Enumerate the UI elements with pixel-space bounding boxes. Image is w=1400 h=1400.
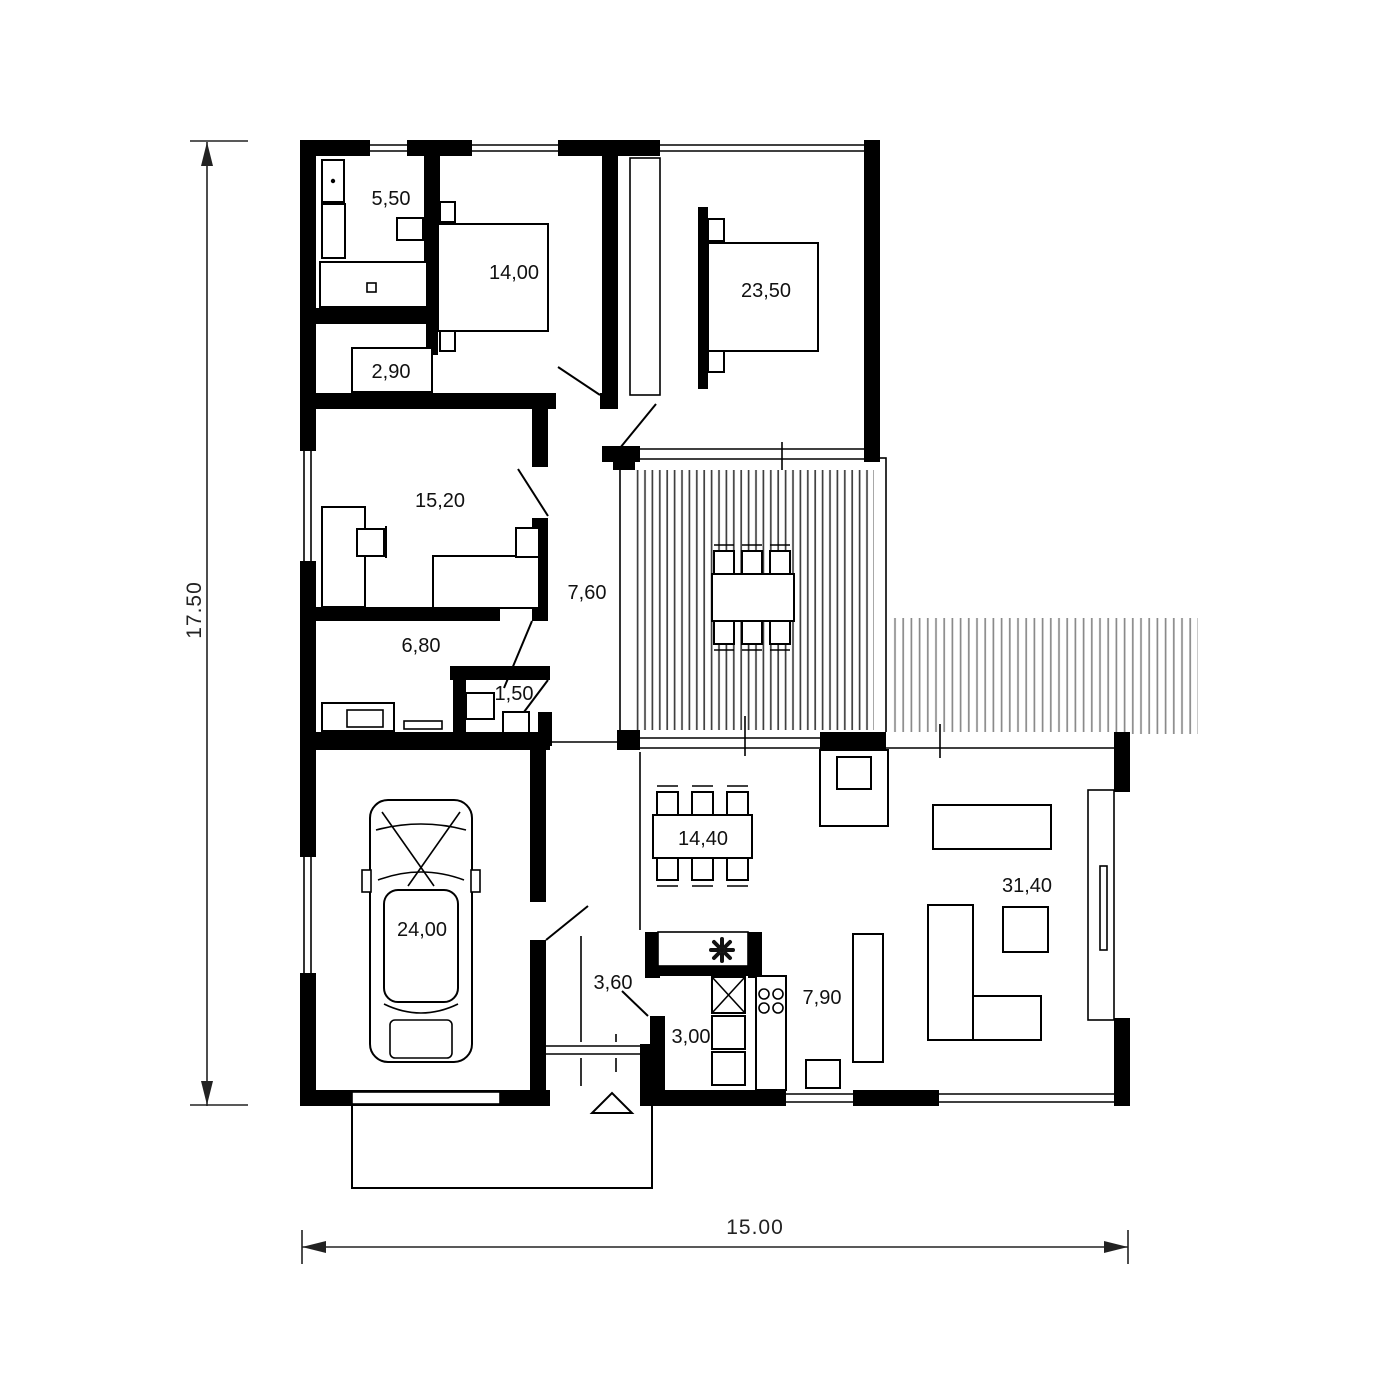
chair bbox=[657, 792, 678, 815]
label-wc: 1,50 bbox=[495, 683, 534, 705]
bed bbox=[433, 556, 539, 608]
bed-headboard bbox=[426, 198, 438, 355]
sink-icon bbox=[711, 939, 733, 961]
chair bbox=[714, 621, 734, 644]
sliding-door-master-terrace bbox=[640, 446, 864, 462]
terrace-table bbox=[712, 574, 794, 621]
chair bbox=[727, 792, 748, 815]
bedside-shelf bbox=[397, 218, 423, 240]
bed-headboard bbox=[698, 207, 708, 389]
burner bbox=[759, 989, 769, 999]
window-top-bedroom bbox=[472, 140, 558, 156]
label-garage: 24,00 bbox=[397, 919, 447, 941]
appliance-column bbox=[712, 977, 745, 1085]
chair bbox=[770, 621, 790, 644]
window-bottom-kitchen bbox=[786, 1090, 853, 1106]
window-left-garage bbox=[300, 857, 316, 973]
terrace-extension-hatch bbox=[888, 618, 1198, 734]
dim-depth: 17.50 bbox=[183, 581, 206, 639]
nightstand bbox=[708, 350, 724, 372]
chair bbox=[714, 551, 734, 574]
burner bbox=[759, 1003, 769, 1013]
doormat bbox=[404, 721, 442, 729]
kitchen-cabinet bbox=[806, 1060, 840, 1088]
chair bbox=[742, 551, 762, 574]
sliding-door-living-terrace bbox=[640, 732, 820, 750]
window-top-bath bbox=[370, 140, 407, 156]
window-top-master bbox=[660, 140, 864, 156]
chair bbox=[692, 792, 713, 815]
appliance bbox=[712, 1052, 745, 1085]
pillow bbox=[516, 528, 539, 557]
dim-width: 15.00 bbox=[726, 1216, 784, 1239]
label-hall: 6,80 bbox=[402, 635, 441, 657]
floor-plan-drawing: 5,50 14,00 23,50 2,90 15,20 7,60 6,80 1,… bbox=[0, 0, 1400, 1400]
label-kitchen: 7,90 bbox=[803, 987, 842, 1009]
chair bbox=[357, 529, 384, 556]
toilet bbox=[503, 712, 529, 733]
terrace-dining-set bbox=[712, 545, 794, 650]
sofa-short bbox=[973, 996, 1041, 1040]
coffee-table bbox=[1003, 907, 1048, 952]
garage-door bbox=[352, 1092, 500, 1104]
appliance bbox=[712, 1016, 745, 1049]
wardrobe-unit bbox=[630, 158, 660, 395]
nightstand bbox=[440, 202, 455, 222]
chair bbox=[742, 621, 762, 644]
car-mirror bbox=[362, 870, 371, 892]
car-mirror bbox=[471, 870, 480, 892]
burner bbox=[773, 989, 783, 999]
label-entry: 3,60 bbox=[594, 972, 633, 994]
armchair-cushion bbox=[837, 757, 871, 789]
floor-plan-canvas: 5,50 14,00 23,50 2,90 15,20 7,60 6,80 1,… bbox=[0, 0, 1400, 1400]
window-living-right bbox=[1088, 790, 1130, 1020]
window-bottom-living bbox=[939, 1090, 1114, 1106]
kitchen-island bbox=[853, 934, 883, 1062]
label-hallway: 7,60 bbox=[568, 582, 607, 604]
nightstand bbox=[708, 219, 724, 241]
nightstand bbox=[440, 331, 455, 351]
chair bbox=[657, 857, 678, 880]
chair bbox=[692, 857, 713, 880]
label-dining: 14,40 bbox=[678, 828, 728, 850]
label-pantry: 3,00 bbox=[672, 1026, 711, 1048]
burner bbox=[773, 1003, 783, 1013]
chair bbox=[770, 551, 790, 574]
label-wardrobe: 2,90 bbox=[372, 361, 411, 383]
washbasin-column bbox=[322, 204, 345, 258]
label-study: 15,20 bbox=[415, 490, 465, 512]
chair bbox=[727, 857, 748, 880]
label-bedroom: 14,00 bbox=[489, 262, 539, 284]
sideboard bbox=[933, 805, 1051, 849]
label-bathroom: 5,50 bbox=[372, 188, 411, 210]
label-living-room: 31,40 bbox=[1002, 875, 1052, 897]
label-master-bedroom: 23,50 bbox=[741, 280, 791, 302]
washbasin bbox=[466, 693, 494, 719]
sofa-long bbox=[928, 905, 973, 1040]
window-left-study bbox=[300, 451, 316, 561]
